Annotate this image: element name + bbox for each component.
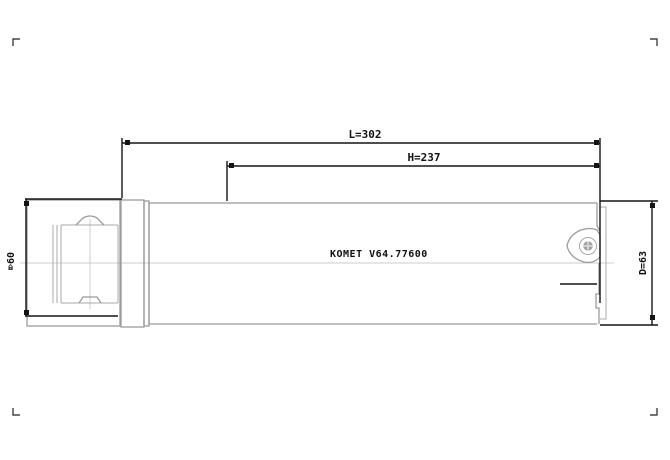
dim-length-tick-left [125, 140, 130, 145]
dimension-left-diameter: ⌦60 [6, 199, 122, 316]
body-end-bottom-contour [596, 263, 599, 324]
corner-mark-top-left [13, 39, 20, 46]
technical-drawing-page: KOMET V64.77600 L=302 H=237 [0, 0, 670, 460]
dim-right-tick-top [650, 203, 655, 208]
dim-head-tick-left [229, 163, 234, 168]
dim-length-label: L=302 [348, 128, 381, 141]
dimension-head: H=237 [227, 151, 600, 201]
coupling-bore-lines [53, 225, 118, 303]
body-marking-text: KOMET V64.77600 [330, 249, 428, 260]
dim-length-tick-right [594, 140, 599, 145]
dim-right-tick-bottom [650, 315, 655, 320]
dimension-length: L=302 [122, 128, 600, 303]
dim-left-diameter-label: ⌦60 [6, 252, 17, 270]
dim-left-tick-top [24, 201, 29, 206]
dim-right-diameter-label: D=63 [638, 251, 649, 275]
corner-mark-bottom-right [650, 408, 657, 415]
corner-mark-top-right [650, 39, 657, 46]
insert-screw-slots [583, 241, 593, 251]
corner-mark-bottom-left [13, 408, 20, 415]
dim-head-tick-right [594, 163, 599, 168]
dim-head-label: H=237 [407, 151, 440, 164]
dim-left-tick-bottom [24, 310, 29, 315]
cutting-insert [567, 229, 600, 263]
tool-technical-drawing: KOMET V64.77600 L=302 H=237 [0, 0, 670, 460]
